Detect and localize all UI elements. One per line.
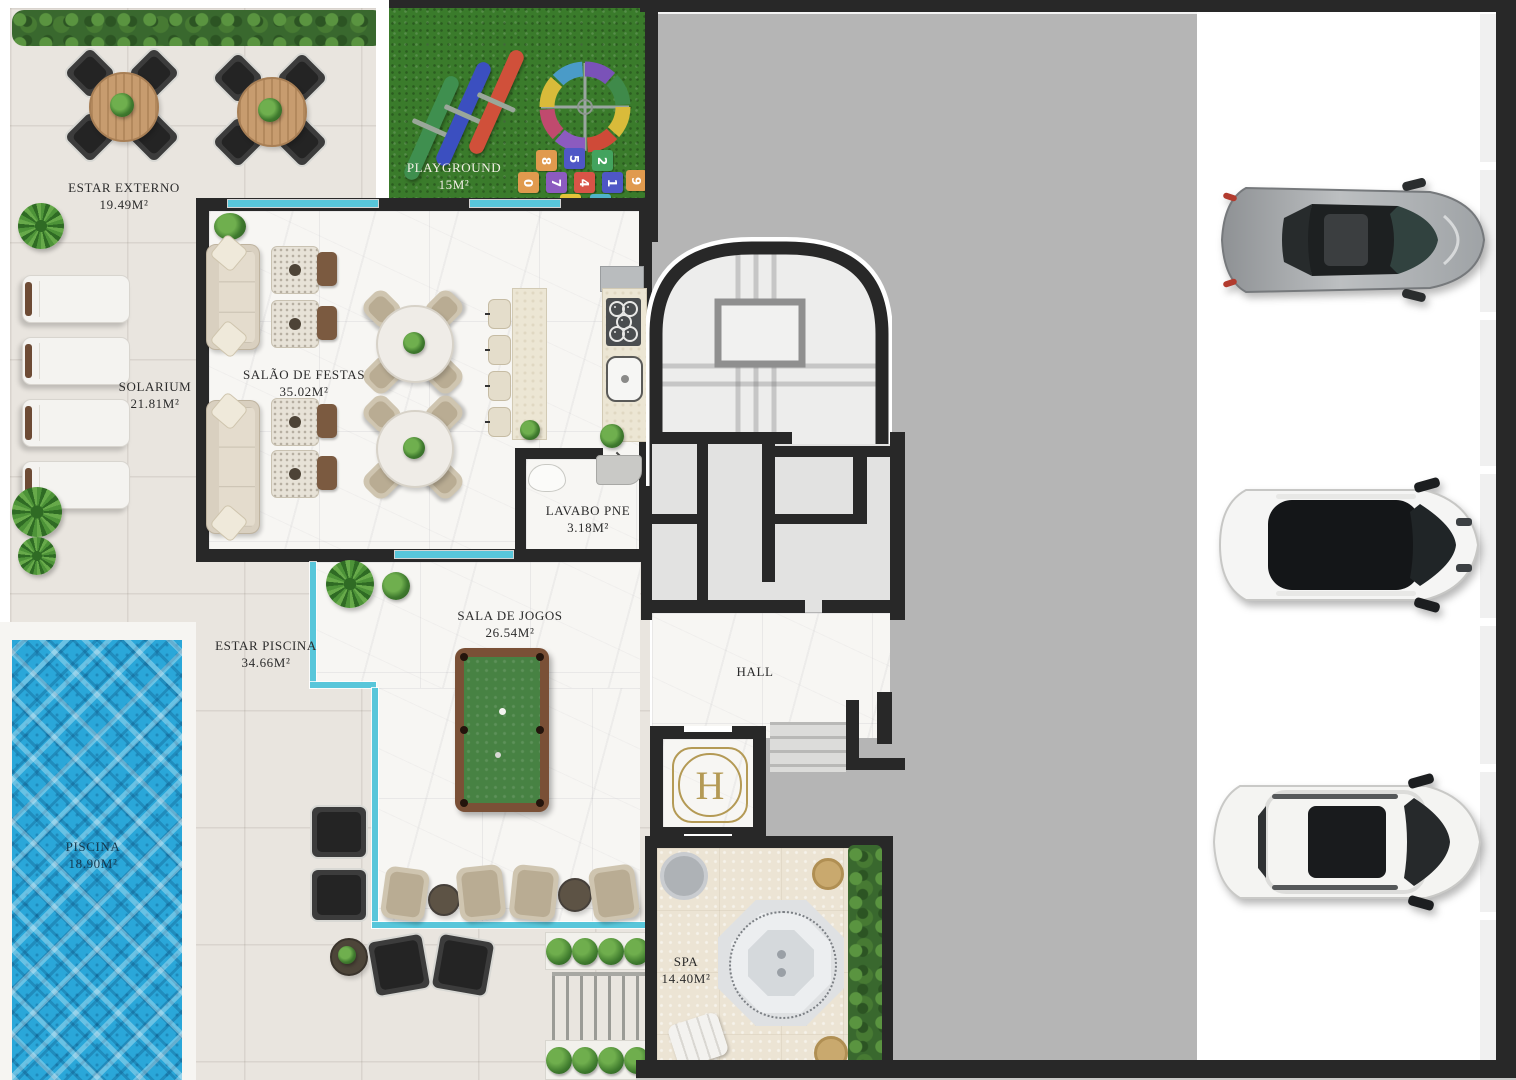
hall-wall: [846, 758, 905, 770]
armchair: [380, 865, 431, 923]
hopscotch-mat: 9: [626, 170, 647, 191]
spa-jet: [777, 950, 786, 959]
salao-window-top2: [470, 200, 560, 207]
side-table-round: [558, 878, 592, 912]
tech-wall: [770, 446, 905, 457]
hopscotch-mat: 2: [592, 150, 613, 171]
dining-set: [355, 389, 471, 505]
sun-lounger: [22, 275, 130, 323]
hopscotch-mat: 8: [536, 150, 557, 171]
label-sala-de-jogos: SALA DE JOGOS26.54M²: [435, 608, 585, 642]
toilet-icon: [528, 464, 566, 492]
spa-side-table: [660, 852, 708, 900]
label-lavabo-pne: LAVABO PNE3.18M²: [528, 503, 648, 537]
cooktop-icon: [606, 298, 641, 346]
hopscotch-mat: 7: [546, 172, 567, 193]
parking-divider: [1205, 764, 1496, 772]
label-piscina: PISCINA18.90M²: [33, 839, 153, 873]
tech-wall: [697, 444, 708, 608]
bar-stool: [488, 335, 511, 365]
label-estar-externo: ESTAR EXTERNO19.49M²: [54, 180, 194, 214]
parking-divider: [1205, 618, 1496, 626]
sun-lounger: [22, 337, 130, 385]
armchair: [508, 864, 559, 923]
chair: [317, 404, 337, 438]
hall-wall-right: [877, 692, 892, 744]
pergola-trellis: [552, 972, 649, 1044]
hopscotch-mat: 1: [602, 172, 623, 193]
frame-top: [640, 0, 1516, 12]
pool-armchair: [429, 931, 496, 998]
chair: [317, 306, 337, 340]
bar-stool: [488, 299, 511, 329]
table-plant: [258, 98, 282, 122]
planter-plant: [338, 946, 356, 964]
plant: [520, 420, 540, 440]
salao-window-top: [228, 200, 378, 207]
jogos-glass-bottom: [372, 922, 648, 928]
lavabo-wall-left: [515, 448, 526, 549]
tech-wall: [853, 446, 867, 524]
tech-wall: [652, 514, 708, 524]
bush-plant: [382, 572, 410, 600]
chair: [317, 252, 337, 286]
playground-top-wall: [389, 0, 646, 8]
car-silver-sedan: [1212, 176, 1492, 304]
parking-divider: [1205, 312, 1496, 320]
jogos-glass-left2: [372, 688, 378, 928]
parking-aisle-divider: [1197, 14, 1205, 1060]
pool-armchair: [310, 805, 368, 859]
label-playground: PLAYGROUND15M²: [394, 160, 514, 194]
elevator-logo-letter: H: [696, 762, 725, 809]
playground-gap: [376, 4, 389, 200]
armchair: [455, 864, 506, 923]
label-solarium: SOLARIUM21.81M²: [95, 379, 215, 413]
label-salao-de-festas: SALÃO DE FESTAS35.02M²: [224, 367, 384, 401]
tree-plant: [326, 560, 374, 608]
label-estar-piscina: ESTAR PISCINA34.66M²: [196, 638, 336, 672]
car-white-suv-black-roof: [1210, 474, 1494, 616]
side-table: [271, 300, 319, 348]
armchair: [587, 863, 640, 923]
table-plant: [403, 437, 425, 459]
spa-hedge: [848, 845, 882, 1080]
label-spa: SPA14.40M²: [636, 954, 736, 988]
table-plant: [403, 332, 425, 354]
palm-plant: [18, 537, 56, 575]
side-table: [271, 246, 319, 294]
salao-door-glass: [395, 551, 513, 558]
terrace-dining-set: [212, 52, 328, 168]
frame-bottom: [636, 1060, 1516, 1078]
billiard-table: [455, 648, 549, 812]
spa-stool: [812, 858, 844, 890]
tech-wall: [652, 600, 805, 613]
sofa: [206, 244, 260, 350]
bar-stool: [488, 407, 511, 437]
kitchen-island: [512, 288, 547, 440]
pool-armchair: [310, 868, 368, 922]
parking-divider: [1205, 912, 1496, 920]
sink-icon: [606, 356, 643, 402]
sofa: [206, 400, 260, 534]
tech-rooms-floor: [652, 444, 905, 612]
spa-jet: [777, 968, 786, 977]
lavabo-counter: [596, 455, 642, 485]
chair: [317, 456, 337, 490]
tech-wall: [890, 432, 905, 620]
floor-plan-canvas: 8 5 2 0 7 4 1 9 6 3: [0, 0, 1516, 1080]
elevator-door: [684, 726, 732, 732]
elevator-logo-medallion: H: [672, 747, 748, 823]
palm-plant: [12, 487, 62, 537]
tech-wall: [822, 600, 905, 613]
frame-right: [1496, 8, 1516, 1064]
top-hedge: [12, 10, 385, 46]
tech-wall: [775, 514, 859, 524]
spa-tub-pool: [748, 930, 814, 996]
car-white-suv-panoramic: [1208, 772, 1496, 912]
side-table-round: [428, 884, 460, 916]
parking-divider: [1205, 162, 1496, 170]
table-plant: [110, 93, 134, 117]
lavabo-wall-top: [515, 448, 603, 459]
bar-stool: [488, 371, 511, 401]
hopscotch-mat: 5: [564, 148, 585, 169]
label-hall: HALL: [705, 664, 805, 681]
pool-armchair: [365, 931, 432, 998]
side-table: [271, 398, 319, 446]
stair-steps: [770, 722, 846, 772]
hopscotch-mat: 4: [574, 172, 595, 193]
building-wall-playground: [645, 0, 658, 242]
terrace-dining-set: [64, 47, 180, 163]
hopscotch-mat: 0: [518, 172, 539, 193]
parking-divider: [1205, 466, 1496, 474]
tech-wall: [762, 432, 775, 582]
plant: [600, 424, 624, 448]
jogos-glass-notch: [310, 682, 376, 688]
carousel-icon: [535, 57, 635, 157]
side-table: [271, 450, 319, 498]
